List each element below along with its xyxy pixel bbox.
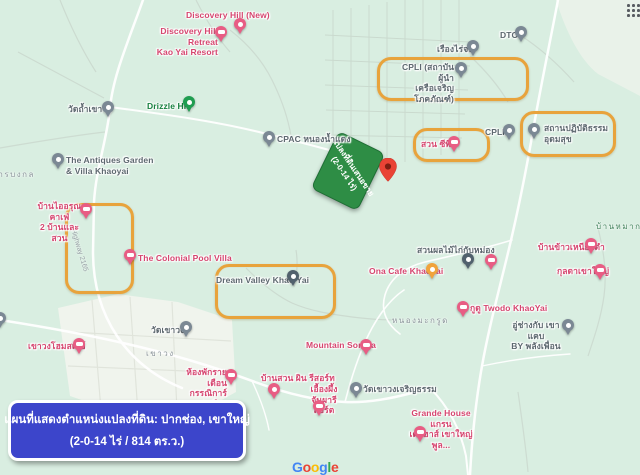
- poi-pin-ona-cafe[interactable]: [426, 263, 438, 275]
- poi-label-discovery-hill-new[interactable]: Discovery Hill (New): [186, 10, 270, 21]
- poi-pin-dream-valley[interactable]: [287, 270, 299, 282]
- google-logo-letter: e: [331, 459, 339, 475]
- poi-pin-suan-cp[interactable]: [448, 136, 460, 148]
- google-logo[interactable]: Google: [292, 459, 338, 475]
- poi-pin-grande-house[interactable]: [414, 426, 426, 438]
- area-label-baan-mak: บ้านหมาก: [596, 220, 640, 233]
- area-label-khao-wong: เขาวง: [146, 347, 175, 360]
- poi-pin-cpli[interactable]: [503, 124, 515, 136]
- poi-label-fruit-garden[interactable]: สวนผลไม้ไก่กับหม่อง: [417, 245, 495, 256]
- plot-location-pin[interactable]: [379, 158, 397, 182]
- poi-pin-baan-i-arun-cafe[interactable]: [80, 203, 92, 215]
- poi-label-baan-suan-phin-resort[interactable]: บ้านสวน ผิน รีสอร์ท: [261, 373, 335, 384]
- map-caption: แผนที่แสดงตำแหน่งแปลงที่ดิน: ปากช่อง, เข…: [8, 400, 246, 461]
- poi-pin-baan-suan-phin-resort[interactable]: [268, 383, 280, 395]
- poi-label-garage-khao-khaep[interactable]: อู่ช่างกับ เขาแคบBY พลังเพื่อน: [510, 320, 562, 352]
- poi-pin-ueang-phueng-janpha[interactable]: [313, 400, 325, 412]
- google-logo-letter: o: [311, 459, 319, 475]
- area-label-than-bongkol: ธารบงกล: [0, 168, 35, 181]
- apps-grid-icon[interactable]: [627, 4, 640, 17]
- area-label-nong-makrut: หนองมะกรูด: [392, 314, 449, 327]
- poi-pin-fruit-garden[interactable]: [462, 253, 474, 265]
- google-logo-letter: G: [292, 459, 303, 475]
- poi-pin-discovery-hill-new[interactable]: [234, 18, 246, 30]
- poi-label-twodo-khaoyai[interactable]: กูดู Twodo KhaoYai: [470, 303, 547, 314]
- poi-label-meditation-udomsuk[interactable]: สถานปฏิบัติธรรมอุดมสุข: [544, 123, 608, 144]
- poi-pin-antiques-garden[interactable]: [52, 153, 64, 165]
- poi-pin-discovery-hill-retreat[interactable]: [215, 26, 227, 38]
- poi-pin-mountain-sonata[interactable]: [360, 339, 372, 351]
- poi-label-ueang-phueng-janpha[interactable]: เอื้องผึ้งจันผารีสอร์ต: [306, 384, 342, 416]
- poi-pin-baan-khao-niao-dam[interactable]: [585, 238, 597, 250]
- poi-label-cpac-nong-nam-daeng[interactable]: CPAC หนองน้ำแดง: [277, 134, 351, 145]
- poi-pin-drizzle-hill[interactable]: [183, 96, 195, 108]
- poi-pin-dtc[interactable]: [515, 26, 527, 38]
- caption-line2: (2-0-14 ไร่ / 814 ตร.ว.): [70, 433, 185, 451]
- poi-pin-cpac-nong-nam-daeng[interactable]: [263, 131, 275, 143]
- poi-label-cpli-institute[interactable]: CPLI (สถาบันผู้นำเครือเจริญโภคภัณฑ์): [398, 62, 454, 105]
- poi-pin-twodo-khaoyai[interactable]: [457, 301, 469, 313]
- poi-label-suan-cp[interactable]: สวน ซีพี: [421, 139, 451, 150]
- poi-pin-cpli-institute[interactable]: [455, 62, 467, 74]
- poi-pin-wat-tham-khao-wong[interactable]: [102, 101, 114, 113]
- poi-pin-wat-khao-wong[interactable]: [180, 321, 192, 333]
- poi-label-antiques-garden[interactable]: The Antiques Garden& Villa Khaoyai: [66, 155, 154, 176]
- poi-pin-wat-khao-wong-charoen-tham[interactable]: [350, 382, 362, 394]
- poi-label-baan-i-arun-cafe[interactable]: บ้านไออรุณคาเฟ่2 บ้านและสวน: [33, 201, 86, 244]
- poi-pin-rueang-rai-job[interactable]: [467, 40, 479, 52]
- caption-line1: แผนที่แสดงตำแหน่งแปลงที่ดิน: ปากช่อง, เข…: [4, 411, 250, 429]
- poi-pin-colonial-pool-villa[interactable]: [124, 249, 136, 261]
- poi-pin-monthly-rooms-kannika[interactable]: [225, 369, 237, 381]
- poi-pin-meditation-udomsuk[interactable]: [528, 123, 540, 135]
- poi-label-colonial-pool-villa[interactable]: The Colonial Pool Villa: [138, 253, 232, 264]
- poi-pin-garage-khao-khaep[interactable]: [562, 319, 574, 331]
- poi-label-wat-khao-wong-charoen-tham[interactable]: วัดเขาวงเจริญธรรม: [363, 384, 437, 395]
- highlight-dream-valley: [215, 264, 336, 319]
- map-canvas[interactable]: Highway 2165 เขาวงหนองมะกรูดธารบงกลบ้านห…: [0, 0, 640, 475]
- poi-label-cpli[interactable]: CPLI: [485, 127, 505, 138]
- poi-pin-unlabeled-lodging[interactable]: [485, 254, 497, 266]
- poi-pin-kulada-khaoyai[interactable]: [594, 264, 606, 276]
- poi-label-discovery-hill-retreat[interactable]: Discovery Hill RetreatKao Yai Resort: [146, 26, 218, 58]
- poi-pin-khao-wong-homestay[interactable]: [73, 338, 85, 350]
- google-logo-letter: o: [303, 459, 311, 475]
